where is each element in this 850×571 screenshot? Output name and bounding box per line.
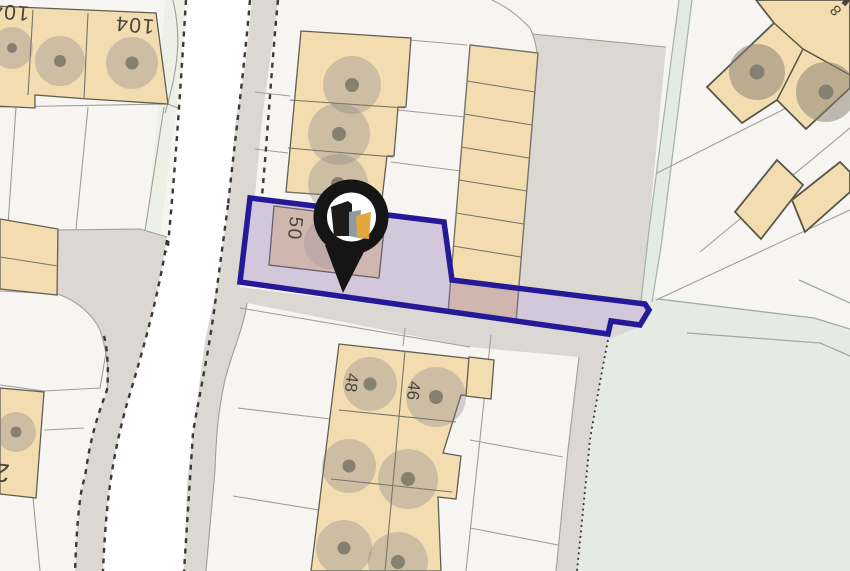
svg-text:104: 104 (114, 11, 155, 37)
svg-text:104: 104 (0, 0, 30, 25)
svg-text:50: 50 (283, 215, 306, 241)
svg-text:48: 48 (341, 372, 362, 393)
svg-text:46: 46 (403, 380, 424, 401)
